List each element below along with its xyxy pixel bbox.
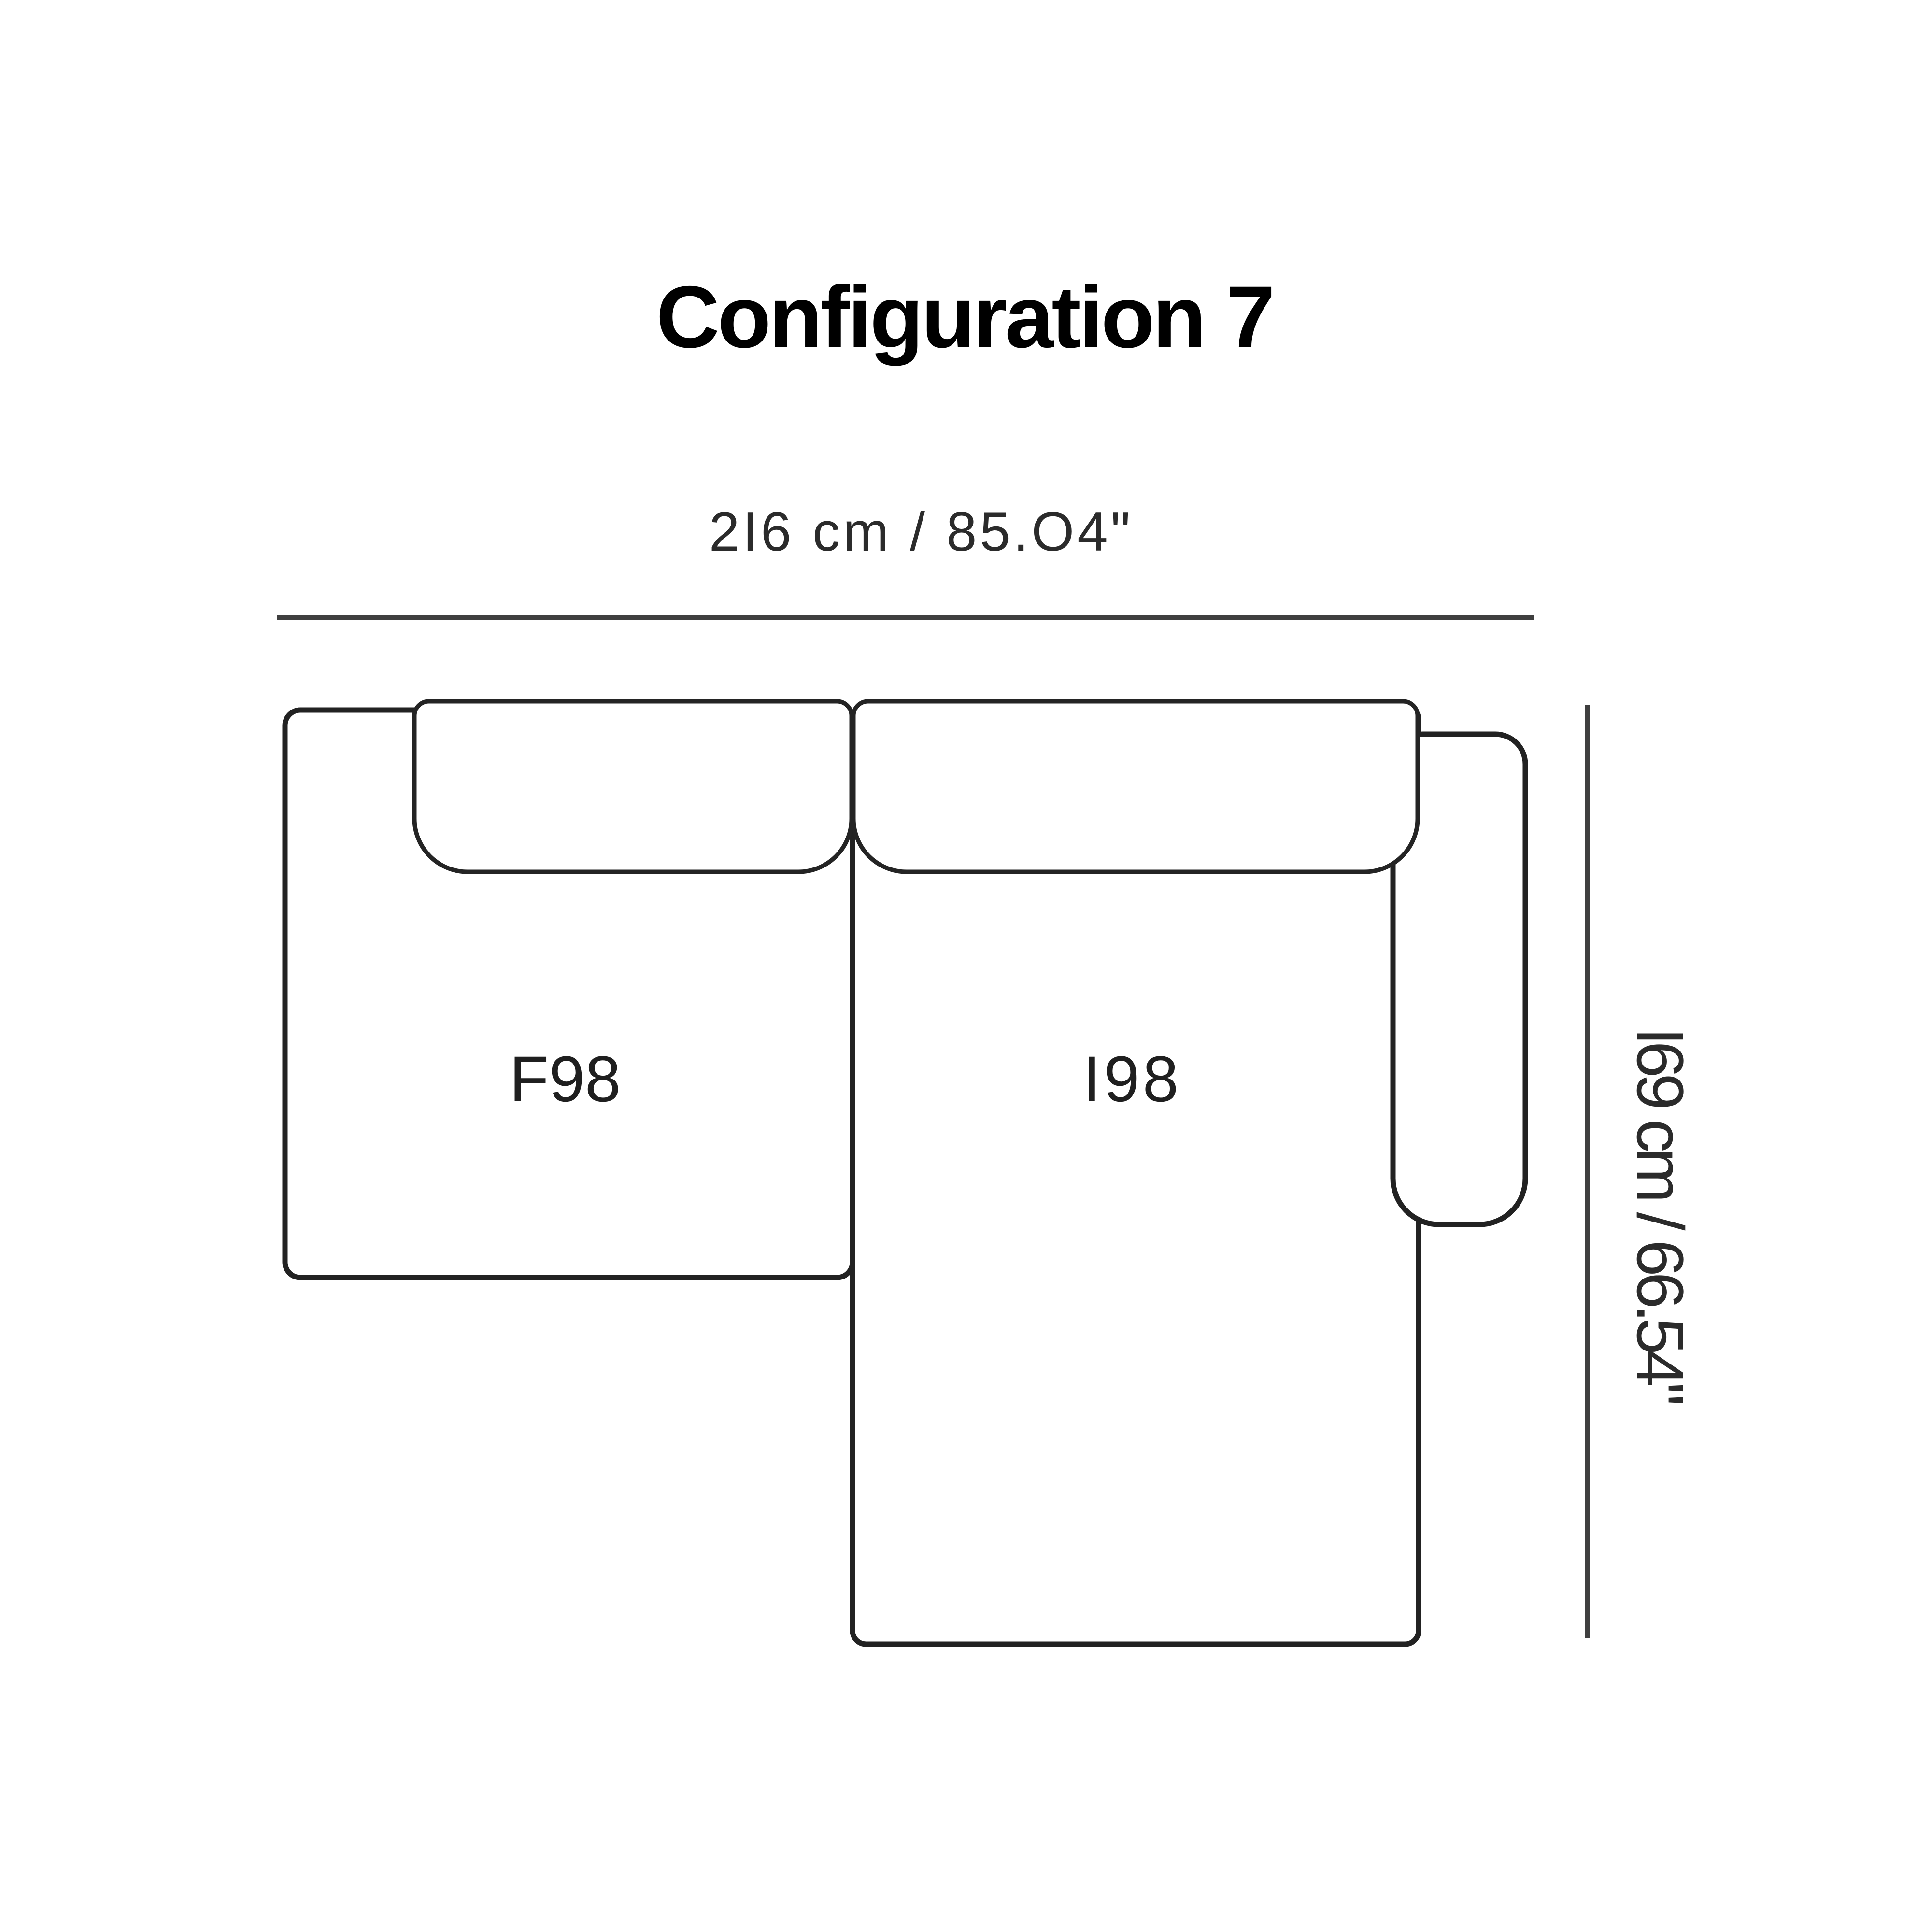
svg-text:I98: I98 <box>1083 1043 1181 1115</box>
svg-text:I69 cm / 66.54": I69 cm / 66.54" <box>1623 1027 1697 1403</box>
svg-text:2I6 cm / 85.O4": 2I6 cm / 85.O4" <box>709 501 1133 563</box>
svg-text:Configuration 7: Configuration 7 <box>656 268 1273 366</box>
svg-text:F98: F98 <box>510 1043 621 1115</box>
